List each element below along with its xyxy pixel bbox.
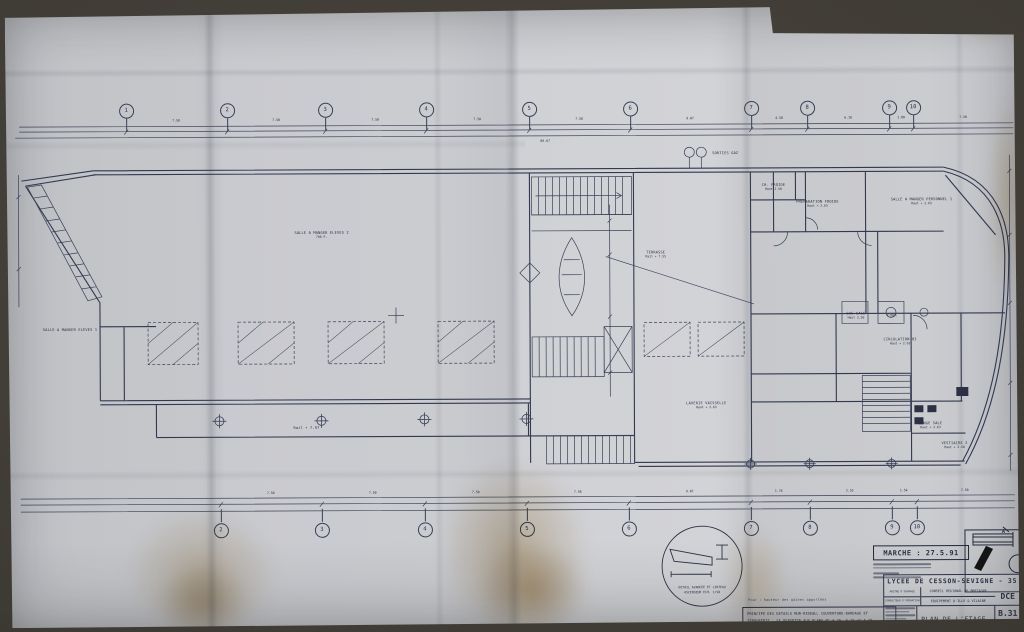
room-label: SAS SALEHaut 2.50	[847, 311, 866, 319]
detail-caption-line2: ASCENSEUR ECH. 1/50	[662, 590, 742, 596]
dimension-label: 9.07	[686, 116, 694, 120]
illegible-stamp-line	[885, 607, 915, 609]
grid-bubble: 4	[417, 522, 432, 537]
room-elevation: Haut 2.50	[762, 187, 786, 191]
grid-bubble: 2	[220, 103, 235, 118]
dimension-label: 7.50	[272, 118, 280, 122]
grid-bubble: 1	[119, 103, 134, 118]
room-label: SORTIES GAZ	[712, 151, 738, 155]
dimension-label: 7.50	[267, 491, 275, 495]
dimension-label: 1.54	[900, 488, 908, 492]
room-label: LINGE SALEHaut + 2.63	[919, 421, 943, 429]
dimension-label: 7.50	[369, 491, 377, 495]
room-label: TERRASSERail + 7.55	[645, 250, 666, 258]
illegible-stamp-line	[885, 625, 903, 627]
room-elevation: Haut + 2.50	[942, 445, 968, 449]
illegible-stamp-line	[885, 618, 906, 620]
conductor-name: EQUIPEMENT D'ILLE & VILAINE	[921, 596, 995, 605]
grid-line-stem	[227, 118, 228, 131]
grid-bubble: 7	[743, 520, 758, 535]
drawing-number-block: B.31 E 1/100	[994, 606, 1020, 632]
phase-code: DCE	[995, 587, 1020, 605]
grid-bubble: 8	[800, 100, 815, 115]
project-title: LYCEE DE CESSON-SEVIGNE - 35	[884, 575, 1020, 588]
label-layer: 123456789102345678910SALLE A MANGER ELEV…	[5, 5, 1020, 628]
grid-line-stem	[751, 116, 752, 129]
grid-line-stem	[527, 508, 528, 521]
grid-bubble: 9	[882, 100, 897, 115]
dimension-label: 4.50	[775, 116, 783, 120]
detail-caption: DETAIL AVANCEE ET LINTEAU ASCENSEUR ECH.…	[662, 585, 742, 596]
room-name: SORTIES GAZ	[712, 151, 738, 155]
illegible-note-line	[873, 567, 931, 569]
grid-line-stem	[126, 119, 127, 132]
room-elevation: Haut + 2.63	[686, 405, 726, 409]
grid-bubble: 2	[213, 523, 228, 538]
drawing-number: B.31	[995, 606, 1020, 621]
grid-line-stem	[807, 116, 808, 129]
owner-label: MAITRE D'OUVRAGE	[884, 587, 920, 597]
dimension-label: 7.58	[172, 118, 180, 122]
grid-line-stem	[751, 507, 752, 520]
dimension-label: 7.50	[961, 488, 969, 492]
dimension-label: 86.67	[540, 139, 550, 143]
title-block-middle: MAITRE D'OUVRAGE CONDUCTEUR D'OPERATION …	[884, 587, 1020, 607]
room-label: SALLE A MANGER PERSONNEL 1Haut + 2.63	[891, 197, 953, 205]
room-elevation: Haut + 2.63	[891, 201, 952, 205]
dimension-label: 7.50	[371, 118, 379, 122]
grid-bubble: 6	[623, 101, 638, 116]
room-elevation: Rail + 7.55	[645, 254, 666, 258]
drawing-title: PLAN DE L'ETAGE.	[917, 606, 994, 632]
detail-a-label: A	[1002, 529, 1005, 535]
owner-name: CONSEIL REGIONAL DE BRETAGNE	[921, 587, 995, 597]
dimension-label: 1.76	[775, 489, 783, 493]
grid-line-stem	[889, 115, 890, 128]
dimension-label: 2.55	[846, 489, 854, 493]
grid-bubble: 3	[314, 522, 329, 537]
blueprint-paper: 123456789102345678910SALLE A MANGER ELEV…	[5, 5, 1020, 628]
grid-bubble: 4	[419, 102, 434, 117]
drawing-scale: E 1/100	[995, 621, 1020, 632]
grid-line-stem	[629, 507, 630, 520]
photo-frame: 123456789102345678910SALLE A MANGER ELEV…	[0, 0, 1024, 632]
grid-line-stem	[810, 507, 811, 520]
grid-bubble: 10	[909, 520, 924, 535]
room-label: PREPARATION FROIDEHaut + 2.63	[796, 200, 839, 208]
grid-line-stem	[221, 509, 222, 522]
room-label: SALLE A MANGER ELEVES 2700 P.	[294, 231, 348, 239]
dimension-label: 7.58	[574, 490, 582, 494]
grid-line-stem	[325, 118, 326, 131]
room-elevation: Haut + 2.63	[919, 425, 943, 429]
room-name: Rail + 7.97	[293, 426, 319, 430]
dimension-label: 7.50	[473, 117, 481, 121]
illegible-stamp-line	[885, 611, 909, 613]
handwritten-note: Pour : hauteur des gaines apportées	[748, 598, 826, 602]
illegible-stamp-line	[885, 622, 915, 624]
title-block-role-labels: MAITRE D'OUVRAGE CONDUCTEUR D'OPERATION	[884, 587, 921, 605]
dimension-label: 7.50	[472, 490, 480, 494]
conductor-label: CONDUCTEUR D'OPERATION	[884, 597, 920, 606]
title-block-parties: CONSEIL REGIONAL DE BRETAGNE EQUIPEMENT …	[921, 587, 995, 605]
grid-bubble: 9	[884, 520, 899, 535]
room-elevation: Haut + 2.63	[796, 204, 839, 208]
note-line-2: SERRURERIE : SE REPORTER AUX PLANS N° A.…	[747, 617, 891, 624]
grid-bubble: 3	[318, 102, 333, 117]
architect-stamp-block	[884, 606, 917, 632]
general-note-box: PRINCIPE DES DETAILS MUR-RIDEAU, COUVERT…	[742, 606, 896, 632]
grid-line-stem	[630, 116, 631, 129]
room-label: FOUR	[887, 313, 896, 317]
grid-line-stem	[913, 115, 914, 128]
room-label: CIRCULATION 03Haut + 2.63	[884, 337, 917, 345]
title-block-bottom: PLAN DE L'ETAGE. B.31 E 1/100	[884, 606, 1020, 632]
room-elevation: 700 P.	[294, 235, 348, 239]
room-label: LAVERIE VAISSELLEHaut + 2.63	[686, 401, 726, 409]
grid-bubble: 6	[621, 521, 636, 536]
dimension-label: 6.10	[844, 116, 852, 120]
room-label: Rail + 7.97	[293, 426, 319, 430]
dimension-label: 7.58	[575, 117, 583, 121]
grid-bubble: 5	[522, 101, 537, 116]
grid-line-stem	[892, 506, 893, 519]
grid-line-stem	[322, 509, 323, 522]
room-label: CH. FROIDEHaut 2.50	[762, 183, 786, 191]
grid-bubble: 5	[519, 521, 534, 536]
grid-line-stem	[426, 117, 427, 130]
room-elevation: Haut 2.50	[847, 315, 866, 319]
grid-line-stem	[529, 117, 530, 130]
grid-line-stem	[917, 506, 918, 519]
illegible-note-line	[873, 563, 931, 565]
grid-line-stem	[425, 508, 426, 521]
room-name: FOUR	[887, 313, 896, 317]
marche-date-stamp: MARCHE : 27.5.91	[873, 545, 969, 560]
room-elevation: Haut + 2.63	[884, 341, 917, 345]
dimension-label: 1.80	[897, 115, 905, 119]
grid-bubble: 10	[906, 100, 921, 115]
grid-bubble: 8	[802, 520, 817, 535]
dimension-label: 7.50	[959, 115, 967, 119]
dimension-label: 9.07	[686, 489, 694, 493]
room-name: SALLE A MANGER ELEVES 1	[43, 328, 97, 332]
room-label: SALLE A MANGER ELEVES 1	[43, 328, 97, 332]
grid-bubble: 7	[744, 100, 759, 115]
illegible-stamp-line	[885, 614, 915, 616]
title-block: LYCEE DE CESSON-SEVIGNE - 35 MAITRE D'OU…	[883, 574, 1021, 632]
room-label: VESTIAIRE 2Haut + 2.50	[942, 441, 968, 449]
